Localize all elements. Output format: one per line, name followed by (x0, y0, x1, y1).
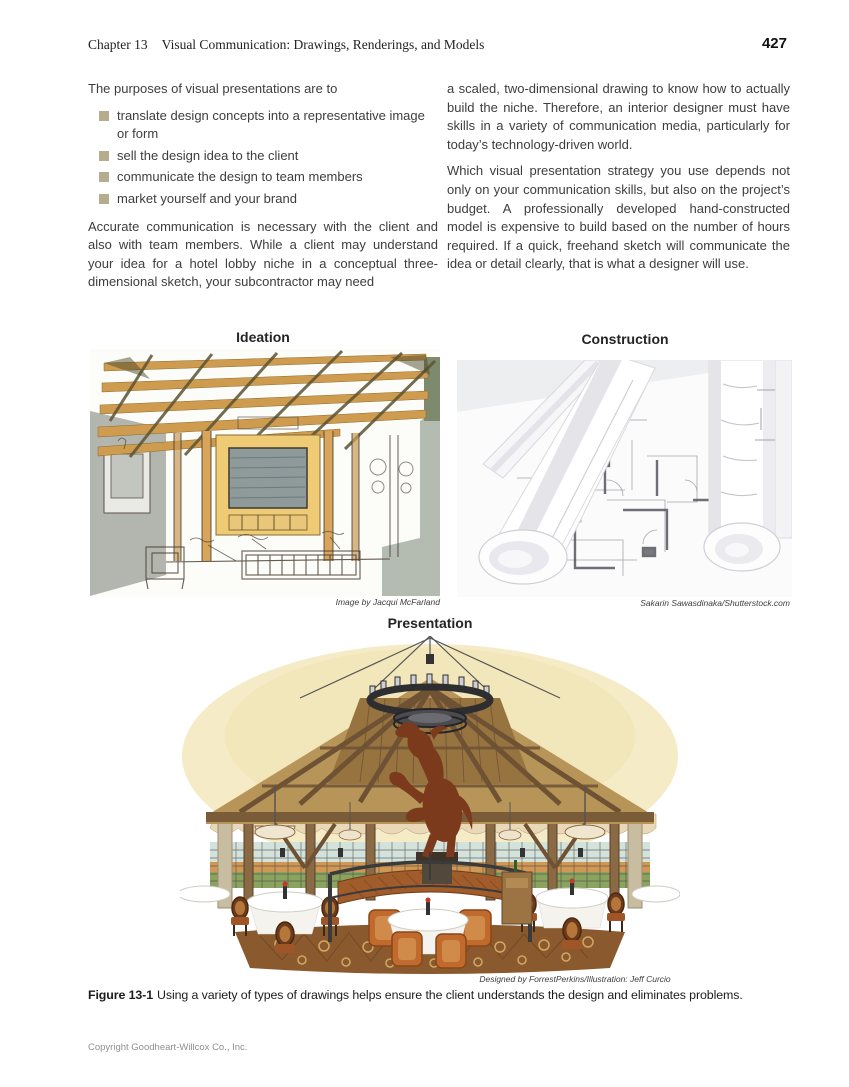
figure-caption-text: Using a variety of types of drawings hel… (157, 988, 743, 1002)
presentation-credit: Designed by ForrestPerkins/Illustration:… (425, 974, 725, 984)
right-column: a scaled, two-dimensional drawing to kno… (447, 80, 790, 274)
ideation-credit: Image by Jacqui McFarland (240, 597, 440, 607)
bullet-text: market yourself and your brand (117, 190, 297, 209)
bullet-text: communicate the design to team members (117, 168, 363, 187)
chapter-number: Chapter 13 (88, 37, 148, 52)
construction-blueprints-image (457, 360, 792, 597)
bullet-square-icon (99, 151, 109, 161)
body-paragraph: a scaled, two-dimensional drawing to kno… (447, 80, 790, 154)
presentation-rendering-image (180, 636, 680, 974)
bullet-square-icon (99, 111, 109, 121)
bullet-text: sell the design idea to the client (117, 147, 298, 166)
list-item: market yourself and your brand (88, 190, 438, 209)
copyright-line: Copyright Goodheart-Willcox Co., Inc. (88, 1042, 247, 1053)
presentation-label: Presentation (330, 615, 530, 631)
textbook-page: Chapter 13Visual Communication: Drawings… (0, 0, 849, 1087)
body-paragraph: Accurate communication is necessary with… (88, 218, 438, 292)
page-number: 427 (762, 35, 787, 52)
running-header: Chapter 13Visual Communication: Drawings… (88, 37, 484, 53)
list-item: translate design concepts into a represe… (88, 107, 438, 144)
construction-credit: Sakarin Sawasdinaka/Shutterstock.com (590, 598, 790, 608)
left-column: The purposes of visual presentations are… (88, 80, 438, 292)
body-paragraph: Which visual presentation strategy you u… (447, 162, 790, 274)
ideation-sketch-image (90, 349, 440, 596)
intro-line: The purposes of visual presentations are… (88, 80, 438, 99)
bullet-square-icon (99, 194, 109, 204)
bullet-text: translate design concepts into a represe… (117, 107, 438, 144)
construction-label: Construction (525, 331, 725, 347)
list-item: sell the design idea to the client (88, 147, 438, 166)
right-paper-roll (704, 360, 792, 571)
bullet-list: translate design concepts into a represe… (88, 107, 438, 209)
bullet-square-icon (99, 172, 109, 182)
figure-caption-label: Figure 13-1 (88, 988, 153, 1002)
figure-caption: Figure 13-1Using a variety of types of d… (88, 988, 796, 1002)
ideation-label: Ideation (163, 329, 363, 345)
list-item: communicate the design to team members (88, 168, 438, 187)
chapter-title: Visual Communication: Drawings, Renderin… (162, 37, 485, 52)
